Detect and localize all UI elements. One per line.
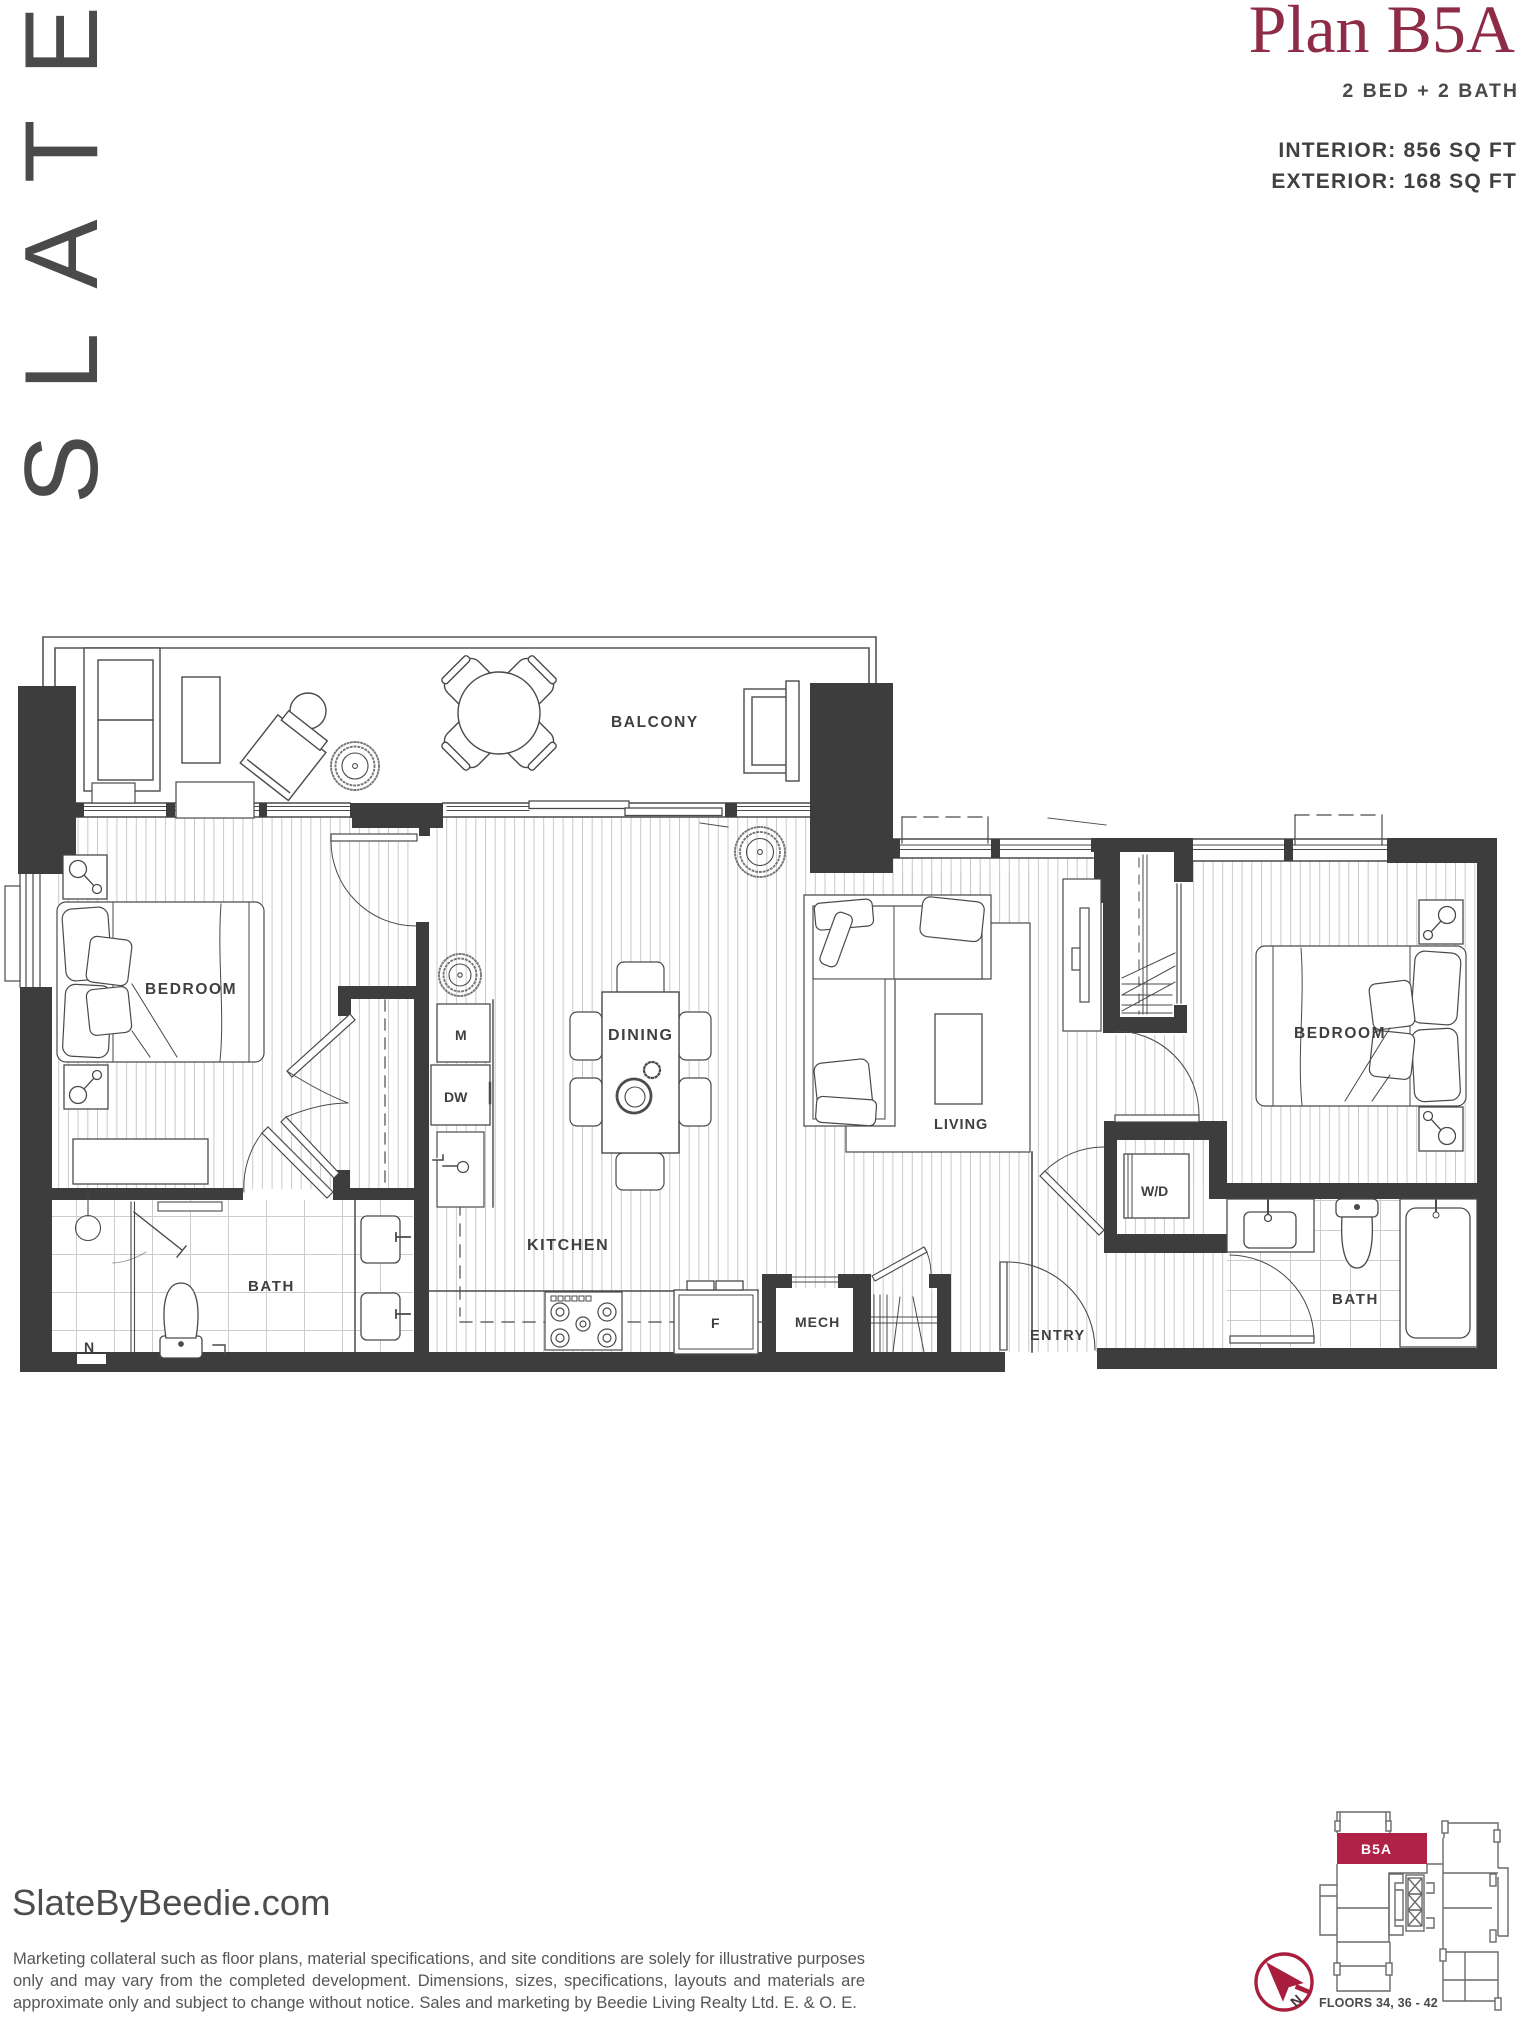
svg-text:MECH: MECH: [795, 1314, 840, 1330]
svg-text:FLOORS 34, 36 - 42: FLOORS 34, 36 - 42: [1319, 1996, 1438, 2010]
svg-text:ENTRY: ENTRY: [1030, 1328, 1086, 1344]
svg-text:KITCHEN: KITCHEN: [527, 1237, 609, 1254]
svg-text:N: N: [1287, 1991, 1305, 2010]
svg-text:BEDROOM: BEDROOM: [145, 981, 237, 998]
svg-text:W/D: W/D: [1141, 1183, 1168, 1199]
svg-text:LIVING: LIVING: [934, 1117, 988, 1133]
svg-text:M: M: [455, 1027, 467, 1043]
svg-text:N: N: [84, 1339, 94, 1355]
svg-text:BATH: BATH: [248, 1278, 295, 1295]
svg-text:BATH: BATH: [1332, 1291, 1379, 1308]
svg-text:DW: DW: [444, 1089, 468, 1105]
svg-text:BALCONY: BALCONY: [611, 714, 699, 731]
svg-text:BEDROOM: BEDROOM: [1294, 1025, 1386, 1042]
svg-text:B5A: B5A: [1361, 1841, 1392, 1857]
svg-text:DINING: DINING: [608, 1027, 674, 1044]
svg-text:F: F: [711, 1315, 720, 1331]
